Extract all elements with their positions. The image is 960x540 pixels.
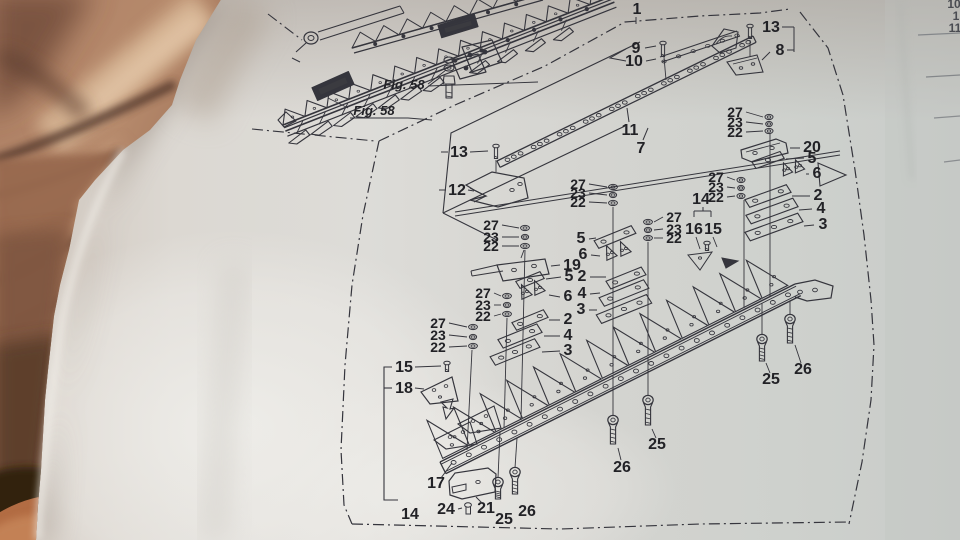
svg-text:6: 6 [564, 288, 573, 305]
svg-text:7: 7 [637, 140, 646, 157]
svg-text:22: 22 [570, 194, 586, 210]
svg-text:22: 22 [708, 189, 724, 205]
svg-text:11: 11 [622, 122, 639, 139]
svg-text:15: 15 [704, 221, 722, 238]
svg-text:22: 22 [430, 339, 446, 355]
svg-text:25: 25 [495, 511, 513, 528]
svg-text:3: 3 [819, 216, 828, 233]
svg-text:13: 13 [762, 19, 780, 36]
svg-text:5: 5 [577, 230, 586, 247]
svg-text:22: 22 [483, 238, 499, 254]
svg-text:8: 8 [776, 42, 785, 59]
svg-text:6: 6 [813, 165, 822, 182]
svg-text:12: 12 [448, 182, 466, 199]
svg-text:11: 11 [949, 21, 960, 35]
svg-text:4: 4 [578, 285, 587, 302]
svg-text:14: 14 [401, 506, 419, 523]
svg-text:4: 4 [817, 200, 826, 217]
svg-text:18: 18 [395, 380, 413, 397]
svg-text:25: 25 [762, 371, 780, 388]
svg-text:26: 26 [613, 459, 631, 476]
svg-text:26: 26 [518, 503, 536, 520]
svg-text:6: 6 [579, 246, 588, 263]
svg-text:Fig. 58: Fig. 58 [353, 103, 395, 118]
svg-text:3: 3 [577, 301, 586, 318]
svg-text:25: 25 [648, 436, 666, 453]
svg-text:17: 17 [427, 475, 445, 492]
svg-text:22: 22 [475, 308, 491, 324]
svg-text:1: 1 [633, 1, 642, 18]
svg-text:16: 16 [685, 221, 703, 238]
svg-text:22: 22 [666, 230, 682, 246]
svg-text:24: 24 [437, 501, 455, 518]
svg-text:2: 2 [578, 268, 587, 285]
svg-text:21: 21 [477, 500, 495, 517]
svg-text:10: 10 [625, 53, 643, 70]
svg-text:5: 5 [565, 268, 574, 285]
svg-text:Fig. 58: Fig. 58 [383, 77, 425, 92]
svg-text:13: 13 [450, 144, 468, 161]
svg-text:14: 14 [692, 191, 710, 208]
svg-text:15: 15 [395, 359, 413, 376]
svg-text:22: 22 [727, 124, 743, 140]
svg-text:2: 2 [564, 311, 573, 328]
svg-text:26: 26 [794, 361, 812, 378]
